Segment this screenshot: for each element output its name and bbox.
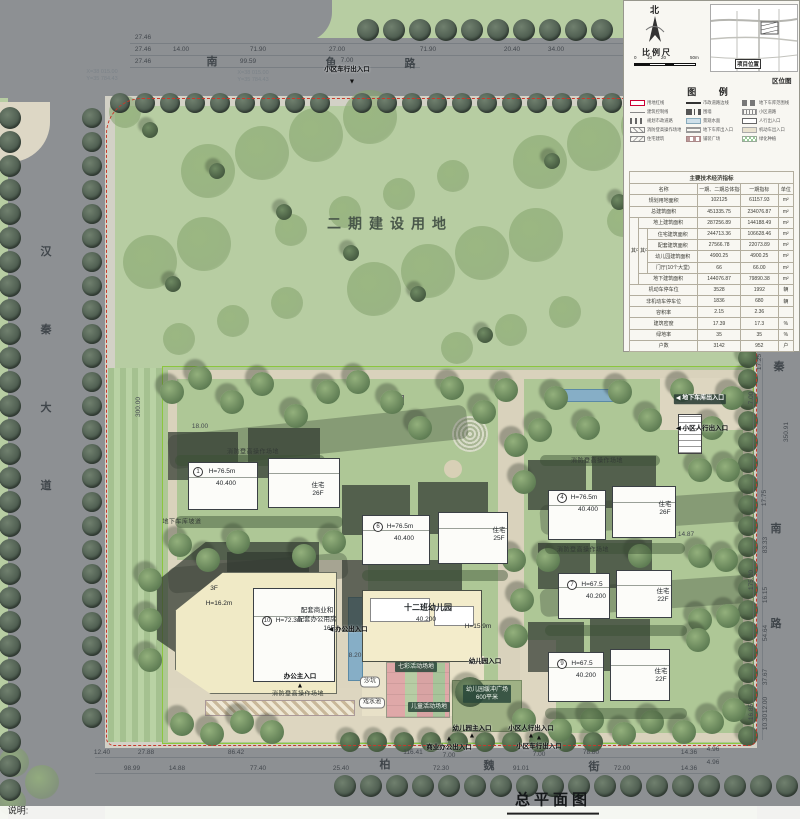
dimension-label: 91.01	[513, 765, 529, 773]
building-label: 40.200	[586, 593, 606, 601]
legend-swatch-icon	[686, 136, 701, 142]
entrance-marker-icon: ▲	[446, 736, 453, 745]
tree-icon	[82, 300, 102, 320]
legend-item: 建筑控制线	[630, 109, 684, 115]
dimension-label: 8.20	[349, 652, 362, 660]
building-label: 住宅	[657, 588, 670, 596]
table-cell: 234076.87	[740, 206, 778, 217]
legend-item-label: 市政道路边线	[703, 100, 729, 106]
dimension-line	[753, 393, 754, 743]
legend-item-label: 绿化种植	[759, 136, 776, 142]
table-cell: m²	[778, 262, 793, 273]
building-label: 3F	[210, 585, 218, 593]
table-cell: 22073.89	[740, 240, 778, 251]
dimension-label: 7.00	[341, 57, 354, 65]
building-label: H=15.9m	[465, 623, 492, 631]
building-label: 40.400	[394, 535, 414, 543]
building-label: H=67.5	[581, 581, 602, 589]
table-cell: 规划用地面积	[630, 195, 698, 206]
entrance-label: 商业办公出入口	[426, 744, 472, 752]
tree-icon	[0, 299, 21, 321]
tree-icon	[776, 775, 798, 797]
table-cell: 单位	[778, 184, 793, 195]
building-label: 配套办公用房	[298, 616, 337, 624]
building-label: 26F	[659, 509, 670, 517]
dimension-label: 14.88	[169, 765, 185, 773]
dimension-line	[95, 773, 720, 774]
legend-item: 用地红线	[630, 100, 684, 106]
legend-item: 铺装广场	[686, 136, 740, 142]
tree-icon	[360, 775, 382, 797]
tree-icon	[0, 683, 21, 705]
dimension-label: 14.87	[678, 531, 694, 539]
table-cell: 680	[740, 296, 778, 307]
dimension-label: 116.41	[403, 749, 422, 757]
dimension-label: 99.59	[240, 58, 256, 66]
entrance-marker-icon: ▲	[528, 733, 535, 742]
table-cell: %	[778, 329, 793, 340]
coordinate-label: X=38 015.00 Y=35 784.43	[237, 70, 268, 84]
tree-icon	[464, 775, 486, 797]
location-map: 项目位置	[710, 4, 798, 72]
dimension-label: 14.36	[681, 765, 697, 773]
table-cell: 66.00	[740, 262, 778, 273]
page-title: 总平面图	[507, 792, 599, 815]
dimension-label: 72.30	[433, 765, 449, 773]
road-name-label: 魏	[484, 760, 495, 774]
dimension-label: 7.00	[748, 392, 756, 405]
fire-field-label: 消防登高操作场地	[227, 449, 279, 457]
tree-icon	[646, 775, 668, 797]
building-label: H=67.5	[571, 660, 592, 668]
building-label: 住宅	[493, 527, 506, 535]
legend-item-label: 用地红线	[647, 100, 664, 106]
legend-swatch-icon	[630, 127, 645, 133]
tree-icon	[82, 372, 102, 392]
table-cell: 户数	[630, 340, 698, 351]
building-label: 住宅	[659, 501, 672, 509]
entrance-marker-icon: ▼	[349, 79, 356, 88]
tree-icon	[82, 516, 102, 536]
table-cell: 辆	[778, 296, 793, 307]
building-label: 16F	[323, 625, 334, 633]
dimension-label: 86.42	[228, 749, 244, 757]
building-label: 40.200	[576, 672, 596, 680]
legend-item: 人行出入口	[742, 118, 796, 124]
tree-icon	[0, 659, 21, 681]
legend-swatch-icon	[630, 136, 645, 142]
legend-swatch-icon	[742, 127, 757, 133]
dimension-label: 4.96	[707, 746, 720, 754]
tree-icon	[82, 228, 102, 248]
table-row: 建筑密度17.3917.3%	[630, 318, 794, 329]
dimension-label: 14.36	[681, 749, 697, 757]
table-cell: 名称	[630, 184, 698, 195]
table-cell: 非机动车停车位	[630, 296, 698, 307]
dimension-label: 12.40	[94, 749, 110, 757]
tree-icon	[82, 588, 102, 608]
tree-icon	[412, 775, 434, 797]
coordinate-label: X=38 015.00 Y=35 784.43	[86, 69, 117, 83]
building-number-badge: 1	[193, 467, 203, 477]
tree-icon	[82, 324, 102, 344]
feature-label: 戏水池	[359, 698, 385, 709]
legend-item-label: 地下车库范围线	[759, 100, 789, 106]
tree-icon	[82, 612, 102, 632]
feature-label: 七彩活动场地	[395, 662, 437, 672]
dimension-label: 37.67	[762, 669, 770, 685]
table-cell: 61157.93	[740, 195, 778, 206]
road-name-label: 道	[41, 480, 52, 494]
table-cell: 其中	[639, 228, 648, 273]
building-label: 配套商业和	[301, 607, 334, 615]
feature-label: 幼儿园缓冲广场 600平米	[463, 685, 511, 703]
table-cell: 17.39	[698, 318, 741, 329]
legend-swatch-icon	[686, 127, 701, 133]
legend-swatch-icon	[742, 118, 757, 124]
tree-icon	[82, 252, 102, 272]
building-number-badge: 9	[557, 659, 567, 669]
tree-icon	[0, 131, 21, 153]
dimension-label: 25.40	[333, 765, 349, 773]
table-cell: 2.15	[698, 307, 741, 318]
table-cell	[778, 307, 793, 318]
tree-icon	[25, 765, 59, 799]
tree-icon	[0, 107, 21, 129]
tree-icon	[0, 227, 21, 249]
tree-icon	[0, 611, 21, 633]
tree-icon	[0, 467, 21, 489]
dimension-line	[130, 67, 420, 68]
road-name-label: 南	[771, 523, 782, 537]
dimension-label: 27.46	[135, 34, 151, 42]
dimension-line	[130, 55, 630, 56]
tree-icon	[409, 19, 431, 41]
table-row: 幼儿园建筑面积4900.254900.25m²	[630, 251, 794, 262]
table-title: 主要技术经济指标	[630, 172, 794, 184]
table-cell: 地上建筑面积	[639, 217, 698, 228]
dimension-label: 17.75	[761, 490, 769, 506]
dimension-label: 77.40	[250, 765, 266, 773]
scale-tick-label: 20	[661, 55, 666, 60]
entrance-label: ◀ 小区人行出入口	[676, 425, 728, 433]
tree-icon	[82, 204, 102, 224]
building-number-badge: 6	[373, 522, 383, 532]
tree-icon	[0, 275, 21, 297]
project-location-label: 项目位置	[735, 59, 761, 69]
indicators-table: 主要技术经济指标名称一期、二期总体指标一期指标单位规划用地面积102125611…	[629, 171, 794, 352]
legend-item-label: 机动车出入口	[759, 127, 785, 133]
legend-item-label: 地下车库出入口	[703, 127, 733, 133]
dimension-label: 27.00	[329, 46, 345, 54]
legend-swatch-icon	[686, 109, 701, 115]
building-label: H=76.5m	[209, 468, 236, 476]
legend-item-label: 景观水面	[703, 118, 720, 124]
road-name-label: 路	[771, 618, 782, 632]
dimension-label: 72.00	[614, 765, 630, 773]
tree-icon	[0, 443, 21, 465]
tree-icon	[334, 775, 356, 797]
table-cell: 机动车停车位	[630, 284, 698, 295]
scale-bar	[634, 63, 696, 66]
table-row: 其中住宅建筑面积244713.36106628.46m²	[630, 228, 794, 239]
table-cell: 绿地率	[630, 329, 698, 340]
road-name-label: 秦	[774, 361, 785, 375]
tree-icon	[0, 155, 21, 177]
scale-bar-ticks: 0102050m	[634, 55, 696, 61]
building-label: 22F	[657, 596, 668, 604]
building-label: 26F	[312, 490, 323, 498]
dimension-line	[130, 43, 625, 44]
dimension-label: 7.00	[533, 751, 546, 759]
tree-icon	[698, 775, 720, 797]
dimension-label: 98.99	[124, 765, 140, 773]
legend-swatch-icon	[630, 118, 645, 124]
tree-icon	[82, 708, 102, 728]
table-cell: 户	[778, 340, 793, 351]
dimension-label: 34.00	[548, 46, 564, 54]
feature-label: 沙坑	[360, 677, 380, 688]
dimension-label: 4.96	[707, 759, 720, 767]
site-plan-canvas: 北 比例尺 0102050m 项目位置 区位图 图 例 用地	[0, 0, 800, 819]
tree-icon	[0, 203, 21, 225]
dimension-label: 17.25	[756, 354, 764, 370]
road-name-label: 路	[405, 58, 416, 72]
legend-swatch-icon	[742, 109, 757, 115]
table-row: 户数3142952户	[630, 340, 794, 351]
tree-icon	[461, 19, 483, 41]
tree-icon	[0, 323, 21, 345]
tree-icon	[0, 755, 21, 777]
legend-item-label: 建筑控制线	[647, 109, 668, 115]
table-cell: m²	[778, 217, 793, 228]
table-row: 总建筑面积451335.75234076.87m²	[630, 206, 794, 217]
tree-icon	[724, 775, 746, 797]
north-arrow-icon	[640, 14, 670, 46]
table-cell: 952	[740, 340, 778, 351]
tree-icon	[0, 515, 21, 537]
table-cell: 4900.25	[740, 251, 778, 262]
tree-icon	[0, 731, 21, 753]
legend-swatch-icon	[630, 109, 645, 115]
tree-icon	[0, 635, 21, 657]
tree-icon	[383, 19, 405, 41]
table-row: 非机动车停车位1836680辆	[630, 296, 794, 307]
legend-swatch-icon	[742, 136, 757, 142]
page-title: 二期建设用地	[327, 215, 453, 233]
legend-item: 住宅建筑	[630, 136, 684, 142]
table-cell: 幼儿园建筑面积	[648, 251, 698, 262]
table-cell: 配套建筑面积	[648, 240, 698, 251]
tree-icon	[82, 108, 102, 128]
tree-icon	[513, 19, 535, 41]
tree-icon	[0, 395, 21, 417]
legend-item-label: 住宅建筑	[647, 136, 664, 142]
building-label: 40.400	[216, 480, 236, 488]
dimension-label: 350.91	[783, 422, 791, 442]
tree-icon	[0, 587, 21, 609]
dimension-label: 18.00	[192, 423, 208, 431]
tree-icon	[620, 775, 642, 797]
building-label: 22F	[655, 676, 666, 684]
tree-icon	[82, 348, 102, 368]
legend-item-label: 消防登高操作场地	[647, 127, 681, 133]
tree-icon	[82, 684, 102, 704]
table-cell: 4900.25	[698, 251, 741, 262]
tree-icon	[0, 179, 21, 201]
legend-item: 景观水面	[686, 118, 740, 124]
legend-grid: 用地红线市政道路边线地下车库范围线建筑控制线围墙小区道路规划市政道路景观水面人行…	[630, 100, 796, 142]
scale-tick-label: 0	[634, 55, 637, 60]
table-cell: m²	[778, 251, 793, 262]
table-cell: 244713.36	[698, 228, 741, 239]
fire-field-label: 消防登高操作场地	[557, 547, 609, 555]
legend-item: 规划市政道路	[630, 118, 684, 124]
legend-item-label: 铺装广场	[703, 136, 720, 142]
dimension-label: 83.33	[762, 537, 770, 553]
tree-icon	[82, 156, 102, 176]
tree-icon	[0, 251, 21, 273]
legend-title: 图 例	[624, 85, 800, 98]
legend-swatch-icon	[742, 100, 757, 106]
tree-icon	[0, 539, 21, 561]
dimension-label: 10.30	[762, 714, 770, 730]
building-number-badge: 7	[567, 580, 577, 590]
tree-icon	[672, 775, 694, 797]
table-cell: 地下建筑面积	[639, 273, 698, 284]
road-name-label: 大	[41, 402, 52, 416]
table-cell: 住宅建筑面积	[648, 228, 698, 239]
building-label: 25F	[493, 535, 504, 543]
building-label: H=76.5m	[387, 523, 414, 531]
table-cell: 3528	[698, 284, 741, 295]
road-name-label: 街	[589, 761, 600, 775]
tree-icon	[357, 19, 379, 41]
legend-item: 围墙	[686, 109, 740, 115]
legend-item: 消防登高操作场地	[630, 127, 684, 133]
table-cell: 102125	[698, 195, 741, 206]
dimension-label: 20.40	[504, 46, 520, 54]
table-cell: 144188.49	[740, 217, 778, 228]
road-name-label: 南	[207, 56, 218, 70]
table-cell: 一期、二期总体指标	[698, 184, 741, 195]
legend-swatch-icon	[686, 100, 701, 106]
tree-icon	[0, 563, 21, 585]
dimension-label: 16.15	[762, 587, 770, 603]
table-row: 其中地上建筑面积287256.89144188.49m²	[630, 217, 794, 228]
tree-icon	[82, 132, 102, 152]
legend-item: 地下车库范围线	[742, 100, 796, 106]
tree-icon	[438, 775, 460, 797]
dimension-label: 71.90	[250, 46, 266, 54]
feature-label: 儿童活动场地	[408, 702, 450, 712]
scale-tick-label: 50m	[690, 55, 699, 60]
table-cell: 一期指标	[740, 184, 778, 195]
table-cell: 451335.75	[698, 206, 741, 217]
building-number-badge: 10	[262, 616, 272, 626]
table-row: 机动车停车位35281992辆	[630, 284, 794, 295]
table-cell: 27566.78	[698, 240, 741, 251]
entrance-marker-icon: ▲	[536, 735, 543, 744]
tree-icon	[82, 180, 102, 200]
legend-swatch-icon	[630, 100, 645, 106]
dimension-label: 7.00	[443, 752, 456, 760]
table-cell: 辆	[778, 284, 793, 295]
table-row: 门厅(10个大堂)6666.00m²	[630, 262, 794, 273]
table-cell: 106628.46	[740, 228, 778, 239]
legend-item: 市政道路边线	[686, 100, 740, 106]
table-cell: m²	[778, 195, 793, 206]
dimension-label: 54.64	[762, 625, 770, 641]
dimension-label: 71.90	[420, 46, 436, 54]
legend-item-label: 围墙	[703, 109, 712, 115]
legend-item: 小区道路	[742, 109, 796, 115]
tree-icon	[82, 420, 102, 440]
tree-icon	[591, 19, 613, 41]
legend-item-label: 人行出入口	[759, 118, 780, 124]
entrance-label: 幼儿园入口	[469, 658, 502, 666]
tree-icon	[0, 347, 21, 369]
table-cell: 1992	[740, 284, 778, 295]
entrance-label: 小区车行出入口	[516, 743, 562, 751]
building-label: 地下车库坡道	[162, 519, 201, 527]
dimension-label: 78.80	[583, 749, 599, 757]
table-row: 配套建筑面积27566.7822073.89m²	[630, 240, 794, 251]
road-name-label: 柏	[380, 759, 391, 773]
tree-icon	[82, 444, 102, 464]
table-cell: 17.3	[740, 318, 778, 329]
table-cell: 其中	[630, 217, 639, 284]
building-label: H=76.5m	[571, 494, 598, 502]
table-cell: 66	[698, 262, 741, 273]
location-map-caption: 区位图	[772, 75, 792, 85]
table-cell: 门厅(10个大堂)	[648, 262, 698, 273]
entrance-label: ◀ 地下车库出入口	[674, 394, 726, 404]
table-cell: 1836	[698, 296, 741, 307]
building-label: 40.200	[416, 616, 436, 624]
legend-swatch-icon	[686, 118, 701, 124]
building-label: 40.400	[578, 506, 598, 514]
table-cell: m²	[778, 240, 793, 251]
table-cell: 35	[698, 329, 741, 340]
table-cell: m²	[778, 228, 793, 239]
building-label: 十二班幼儿园	[404, 603, 452, 613]
scale-tick-label: 10	[647, 55, 652, 60]
dimension-line	[95, 757, 720, 758]
fire-field-label: 消防登高操作场地	[272, 691, 324, 699]
table-cell: 总建筑面积	[630, 206, 698, 217]
road-name-label: 秦	[41, 324, 52, 338]
tree-icon	[82, 660, 102, 680]
table-row: 容积率2.152.36	[630, 307, 794, 318]
dimension-label: 27.88	[138, 749, 154, 757]
tree-icon	[0, 707, 21, 729]
tree-icon	[0, 779, 21, 801]
table-cell: 79890.38	[740, 273, 778, 284]
tree-icon	[0, 371, 21, 393]
tree-icon	[82, 492, 102, 512]
dimension-label: 175.20	[748, 570, 756, 590]
tree-icon	[82, 540, 102, 560]
building-label: H=16.2m	[206, 600, 233, 608]
dimension-label: 16.85	[748, 704, 756, 720]
dimension-label: 12.00	[762, 697, 770, 713]
dimension-label: 14.00	[173, 46, 189, 54]
table-cell: 144076.87	[698, 273, 741, 284]
table-cell: 287256.89	[698, 217, 741, 228]
tree-icon	[0, 419, 21, 441]
table-cell: 容积率	[630, 307, 698, 318]
